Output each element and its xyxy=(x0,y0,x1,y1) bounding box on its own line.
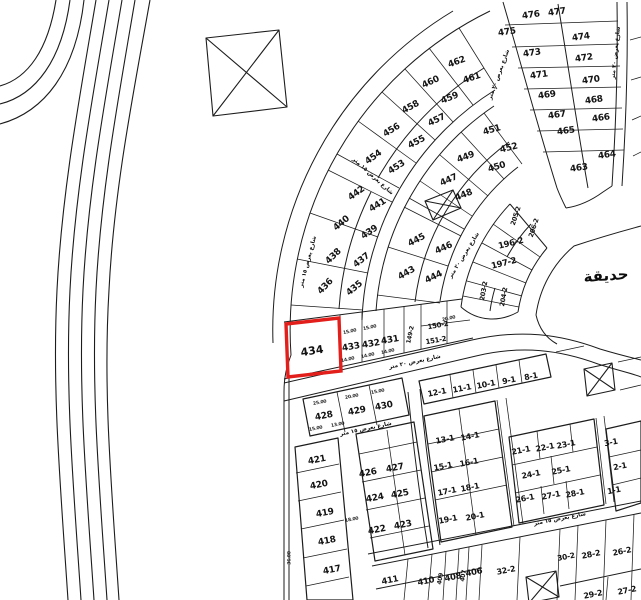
plot-boundary xyxy=(596,418,606,504)
plot-boundary xyxy=(496,365,499,388)
road-line xyxy=(81,0,122,600)
plot-boundary xyxy=(603,520,606,600)
plot-boundary xyxy=(517,537,520,600)
block-outline xyxy=(356,422,433,561)
plot-boundary xyxy=(537,129,623,131)
plot-boundary xyxy=(570,424,573,452)
road-line xyxy=(68,0,109,600)
street-arc xyxy=(518,248,547,312)
plot-boundary xyxy=(620,385,641,390)
plot-boundary xyxy=(377,295,440,303)
plot-boundary xyxy=(328,170,392,202)
street-arc xyxy=(420,389,440,545)
street-arc xyxy=(536,226,641,315)
plot-boundary xyxy=(297,259,368,273)
plot-boundary xyxy=(518,66,620,68)
plot-boundary xyxy=(551,456,554,484)
plot-boundary xyxy=(493,224,540,257)
plot-boundary xyxy=(633,152,641,156)
street-arc xyxy=(362,90,495,320)
plat-map: حديقة 434 435436437438439440441442453454… xyxy=(0,0,641,600)
block-outline xyxy=(295,438,353,600)
cross-diagonal xyxy=(213,30,279,116)
street-arc xyxy=(507,224,531,257)
map-linework xyxy=(0,0,641,600)
plot-boundary xyxy=(556,346,584,352)
plot-boundary xyxy=(359,442,417,454)
plot-boundary xyxy=(473,370,476,393)
road-line xyxy=(0,0,70,104)
plot-boundary xyxy=(537,431,540,459)
plot-boundary xyxy=(370,526,429,538)
street-arc xyxy=(368,501,641,554)
plot-boundary xyxy=(369,385,377,425)
plot-boundary xyxy=(466,547,469,600)
crossed-parcel-marker xyxy=(526,571,559,600)
block-outline xyxy=(424,401,512,542)
plot-boundary xyxy=(530,108,622,110)
street-arc xyxy=(372,513,641,566)
plot-boundary xyxy=(459,28,497,89)
crossed-parcel-markers xyxy=(206,30,615,600)
plot-boundary xyxy=(630,37,641,40)
plot-boundary xyxy=(366,498,425,510)
block-outline xyxy=(419,354,551,404)
street-arc xyxy=(284,11,490,600)
plot-boundary xyxy=(459,409,476,535)
plot-boundary xyxy=(298,492,341,501)
plot-boundary xyxy=(303,549,347,558)
road-line xyxy=(107,0,150,600)
plot-boundary xyxy=(337,392,345,432)
plot-boundary xyxy=(388,247,448,266)
plot-boundary xyxy=(632,116,641,120)
plot-boundary xyxy=(524,87,621,89)
subdivision-arcs xyxy=(273,2,641,600)
plot-boundary xyxy=(467,281,522,296)
plot-boundary xyxy=(404,559,408,600)
plot-boundary xyxy=(473,262,526,283)
highway-roads xyxy=(0,0,150,600)
plot-boundary xyxy=(306,577,349,586)
plot-boundary xyxy=(428,554,432,600)
street-arc xyxy=(284,334,641,383)
plot-boundary xyxy=(612,478,641,485)
plot-boundary xyxy=(291,305,363,310)
plot-boundary xyxy=(543,150,624,152)
street-arc xyxy=(560,569,641,586)
street-arc xyxy=(490,288,495,311)
plot-boundary xyxy=(482,243,532,270)
plot-boundary xyxy=(301,520,344,529)
plot-boundary xyxy=(456,549,459,600)
plot-boundary xyxy=(512,44,619,47)
road-line xyxy=(0,0,56,86)
street-arc xyxy=(503,2,566,208)
plot-boundary xyxy=(296,464,339,473)
street-arc xyxy=(339,192,371,309)
plot-boundary xyxy=(429,48,473,105)
street-arc xyxy=(536,315,557,344)
plot-boundary xyxy=(387,430,405,555)
street-arc xyxy=(566,186,612,208)
plot-boundary xyxy=(479,545,482,600)
street-arc xyxy=(440,167,518,301)
plot-boundary xyxy=(358,121,416,163)
plot-boundary xyxy=(440,155,488,196)
plot-boundary xyxy=(519,360,522,383)
block-outline xyxy=(509,419,604,523)
block-outline xyxy=(606,421,641,511)
plot-boundary xyxy=(631,77,641,80)
street-arc xyxy=(273,11,453,343)
street-arc xyxy=(558,4,588,188)
block-outline xyxy=(303,378,409,436)
street-arc xyxy=(510,204,547,248)
plot-boundary xyxy=(515,475,600,493)
plot-boundary xyxy=(631,514,634,600)
plot-boundary xyxy=(310,213,378,237)
street-arc xyxy=(461,204,510,307)
street-arc xyxy=(376,106,494,311)
road-line xyxy=(0,0,84,124)
plot-boundary xyxy=(484,113,522,164)
road-line xyxy=(55,0,96,600)
plot-boundary xyxy=(575,525,578,600)
plot-boundary xyxy=(609,450,641,457)
plot-boundary xyxy=(450,375,453,398)
plot-boundary xyxy=(541,486,544,514)
plot-boundary xyxy=(421,320,470,326)
plot-boundary xyxy=(512,447,597,465)
road-line xyxy=(94,0,135,600)
plot-boundary xyxy=(566,481,569,509)
street-arc xyxy=(612,2,617,186)
plot-boundary xyxy=(362,470,421,482)
plot-boundary xyxy=(461,132,504,179)
street-arc xyxy=(622,2,627,186)
plot-boundary xyxy=(606,577,608,600)
street-arc xyxy=(378,68,484,178)
street-arc xyxy=(461,307,518,319)
